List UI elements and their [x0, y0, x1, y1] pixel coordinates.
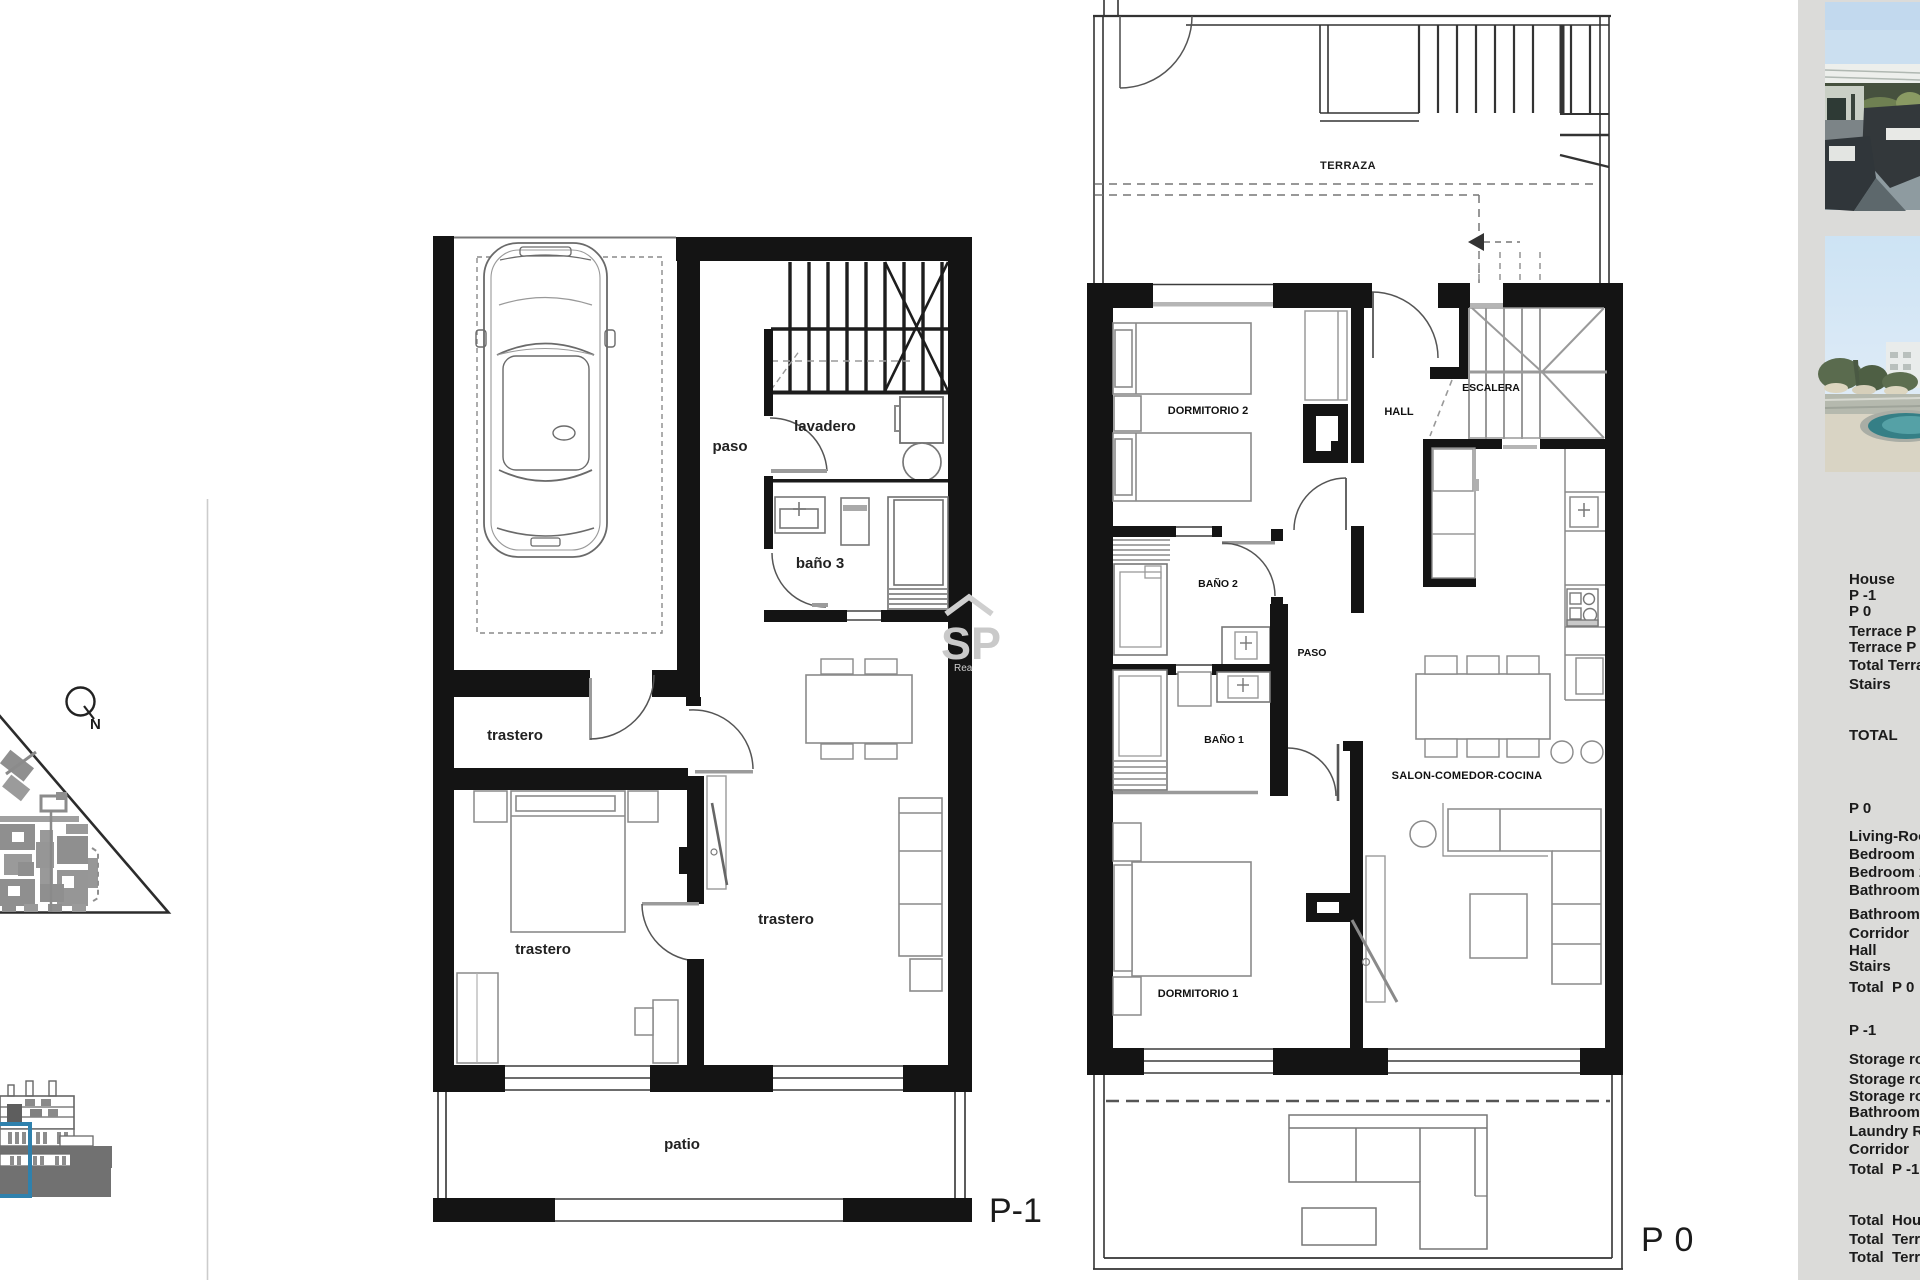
- svg-text:SALON-COMEDOR-COCINA: SALON-COMEDOR-COCINA: [1392, 770, 1543, 782]
- svg-text:P -1: P -1: [1849, 587, 1876, 604]
- svg-text:DORMITORIO 1: DORMITORIO 1: [1158, 988, 1238, 1000]
- svg-text:Rea: Rea: [954, 663, 973, 674]
- svg-text:paso: paso: [712, 438, 747, 455]
- svg-text:baño 3: baño 3: [796, 555, 844, 572]
- svg-text:trastero: trastero: [487, 727, 543, 744]
- svg-text:Total House: Total House: [1849, 1212, 1920, 1229]
- svg-text:P -1: P -1: [1849, 1022, 1876, 1039]
- svg-text:Storage room 1: Storage room 1: [1849, 1051, 1920, 1068]
- svg-text:N: N: [90, 716, 101, 733]
- svg-text:patio: patio: [664, 1136, 700, 1153]
- svg-text:Living-Room-Kitchen: Living-Room-Kitchen: [1849, 828, 1920, 845]
- svg-text:TERRAZA: TERRAZA: [1320, 160, 1376, 172]
- svg-text:lavadero: lavadero: [794, 418, 856, 435]
- svg-text:Total Terraces: Total Terraces: [1849, 1249, 1920, 1266]
- svg-text:Bedroom 2: Bedroom 2: [1849, 864, 1920, 881]
- svg-text:Total P -1: Total P -1: [1849, 1161, 1919, 1178]
- svg-text:Bedroom 1: Bedroom 1: [1849, 846, 1920, 863]
- svg-text:BAÑO 1: BAÑO 1: [1204, 733, 1244, 746]
- svg-text:Laundry Room: Laundry Room: [1849, 1123, 1920, 1140]
- svg-text:Stairs: Stairs: [1849, 958, 1891, 975]
- svg-text:Total Terraces: Total Terraces: [1849, 1231, 1920, 1248]
- svg-text:Corridor: Corridor: [1849, 925, 1909, 942]
- svg-text:trastero: trastero: [758, 911, 814, 928]
- svg-text:Total P 0: Total P 0: [1849, 979, 1914, 996]
- svg-text:Corridor: Corridor: [1849, 1141, 1909, 1158]
- svg-text:P 0: P 0: [1641, 1221, 1694, 1259]
- svg-text:BAÑO 2: BAÑO 2: [1198, 577, 1238, 590]
- svg-text:Bathroom 1: Bathroom 1: [1849, 882, 1920, 899]
- svg-text:PASO: PASO: [1298, 647, 1327, 659]
- svg-text:Terrace P -1: Terrace P -1: [1849, 623, 1920, 640]
- svg-text:HALL: HALL: [1384, 406, 1414, 418]
- svg-text:DORMITORIO 2: DORMITORIO 2: [1168, 405, 1248, 417]
- svg-text:Hall: Hall: [1849, 942, 1877, 959]
- svg-text:P 0: P 0: [1849, 603, 1871, 620]
- svg-text:House: House: [1849, 571, 1895, 588]
- svg-text:Bathroom 2: Bathroom 2: [1849, 906, 1920, 923]
- svg-text:Bathroom 3: Bathroom 3: [1849, 1104, 1920, 1121]
- svg-text:Storage room 2: Storage room 2: [1849, 1071, 1920, 1088]
- svg-text:trastero: trastero: [515, 941, 571, 958]
- svg-text:Stairs: Stairs: [1849, 676, 1891, 693]
- svg-text:P-1: P-1: [989, 1192, 1042, 1230]
- svg-text:Terrace P 0: Terrace P 0: [1849, 639, 1920, 656]
- svg-text:Storage room 3: Storage room 3: [1849, 1088, 1920, 1105]
- svg-text:P 0: P 0: [1849, 800, 1871, 817]
- svg-text:TOTAL: TOTAL: [1849, 727, 1898, 744]
- svg-text:Total Terrace: Total Terrace: [1849, 657, 1920, 674]
- svg-text:SP: SP: [941, 618, 1001, 669]
- svg-text:ESCALERA: ESCALERA: [1462, 382, 1520, 394]
